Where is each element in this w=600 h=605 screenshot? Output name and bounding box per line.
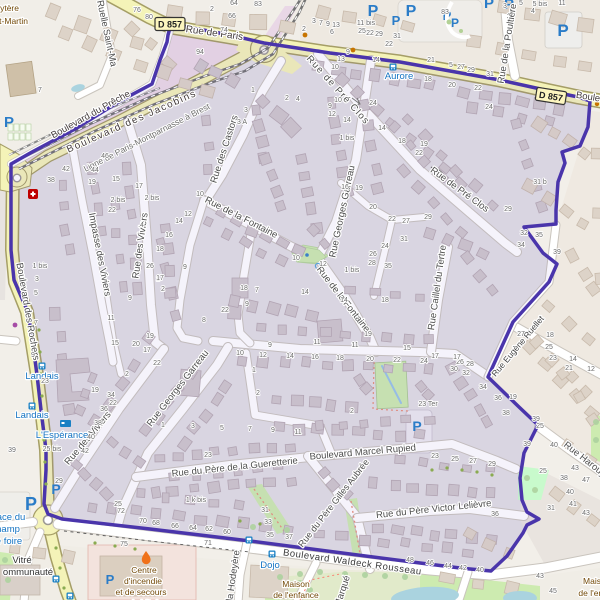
svg-text:3: 3 (35, 276, 39, 283)
svg-text:19: 19 (509, 394, 517, 401)
svg-text:29: 29 (504, 206, 512, 213)
svg-text:13: 13 (337, 56, 345, 63)
svg-text:7: 7 (255, 287, 259, 294)
svg-text:22: 22 (153, 360, 161, 367)
svg-text:7: 7 (38, 87, 42, 94)
svg-text:P: P (392, 13, 401, 28)
svg-text:11: 11 (558, 0, 565, 7)
svg-text:64: 64 (230, 0, 238, 7)
svg-text:24: 24 (369, 100, 377, 107)
svg-text:2: 2 (302, 26, 306, 33)
svg-text:11 bis: 11 bis (357, 20, 376, 27)
svg-text:P: P (412, 418, 421, 434)
svg-text:Mais: Mais (583, 576, 600, 586)
svg-text:32: 32 (520, 230, 528, 237)
svg-text:43: 43 (536, 573, 544, 580)
svg-text:Maison: Maison (282, 579, 310, 589)
svg-text:40: 40 (550, 442, 558, 449)
svg-text:9: 9 (268, 342, 272, 349)
svg-text:10: 10 (334, 97, 342, 104)
svg-text:35: 35 (266, 532, 274, 539)
svg-text:22: 22 (366, 30, 374, 37)
svg-text:ommunauté: ommunauté (3, 567, 53, 578)
svg-text:9: 9 (183, 264, 187, 271)
svg-text:72: 72 (117, 508, 125, 515)
svg-text:38: 38 (47, 177, 55, 184)
svg-text:42: 42 (81, 448, 89, 455)
svg-text:20: 20 (366, 356, 374, 363)
svg-text:12: 12 (587, 366, 595, 373)
svg-text:15: 15 (112, 176, 120, 183)
svg-text:39: 39 (523, 441, 531, 448)
svg-text:31: 31 (393, 33, 401, 40)
svg-text:Vitré: Vitré (12, 555, 31, 566)
svg-text:17: 17 (156, 275, 164, 282)
svg-text:23: 23 (549, 355, 557, 362)
svg-text:8: 8 (202, 317, 206, 324)
svg-text:66: 66 (228, 13, 236, 20)
svg-text:9: 9 (346, 49, 350, 56)
svg-text:94: 94 (196, 49, 204, 56)
svg-text:4: 4 (140, 222, 144, 229)
svg-text:7: 7 (248, 426, 252, 433)
svg-text:Aurore: Aurore (385, 71, 414, 82)
svg-text:12: 12 (328, 111, 336, 118)
svg-text:76: 76 (133, 7, 141, 14)
svg-text:3: 3 (503, 3, 507, 10)
svg-text:18: 18 (381, 297, 389, 304)
svg-text:42: 42 (62, 166, 70, 173)
svg-text:28: 28 (466, 361, 474, 368)
svg-text:1 bis: 1 bis (345, 267, 360, 274)
svg-text:14: 14 (301, 289, 309, 296)
svg-text:2 bis: 2 bis (111, 197, 126, 204)
svg-text:et de secours: et de secours (115, 587, 166, 597)
svg-text:12: 12 (259, 352, 267, 359)
svg-text:19: 19 (420, 141, 428, 148)
svg-text:26: 26 (369, 251, 377, 258)
svg-text:2: 2 (285, 95, 289, 102)
svg-text:33: 33 (264, 519, 272, 526)
svg-text:2: 2 (210, 6, 214, 13)
svg-text:42: 42 (459, 565, 467, 572)
svg-text:3: 3 (312, 18, 316, 25)
svg-text:14: 14 (569, 356, 577, 363)
svg-text:25: 25 (114, 501, 122, 508)
svg-text:31 b: 31 b (533, 179, 547, 186)
svg-text:38: 38 (94, 420, 102, 427)
svg-text:11: 11 (107, 315, 114, 322)
svg-text:14: 14 (175, 218, 183, 225)
svg-text:29: 29 (424, 214, 432, 221)
svg-text:2: 2 (161, 286, 165, 293)
svg-text:31: 31 (400, 236, 408, 243)
svg-text:6: 6 (330, 29, 334, 36)
svg-text:35: 35 (384, 263, 392, 270)
svg-text:22: 22 (108, 207, 116, 214)
svg-text:10: 10 (236, 350, 244, 357)
svg-text:5: 5 (34, 290, 38, 297)
svg-text:23: 23 (431, 453, 439, 460)
svg-text:21: 21 (565, 365, 573, 372)
svg-text:3 A: 3 A (237, 119, 247, 126)
svg-text:68: 68 (152, 520, 160, 527)
svg-text:2: 2 (125, 371, 129, 378)
svg-text:19: 19 (88, 179, 96, 186)
svg-text:11: 11 (351, 342, 358, 349)
svg-text:34: 34 (107, 392, 115, 399)
svg-text:5 bis: 5 bis (533, 1, 548, 8)
svg-text:23: 23 (204, 452, 212, 459)
svg-text:24: 24 (420, 358, 428, 365)
svg-text:28: 28 (368, 260, 376, 267)
svg-text:20: 20 (369, 204, 377, 211)
svg-text:15: 15 (403, 345, 411, 352)
svg-text:32: 32 (462, 370, 470, 377)
svg-text:22: 22 (415, 150, 423, 157)
svg-text:47: 47 (582, 477, 590, 484)
svg-text:Centre: Centre (131, 565, 157, 575)
svg-text:11: 11 (313, 339, 320, 346)
svg-text:17: 17 (135, 183, 143, 190)
svg-text:e foire: e foire (0, 536, 22, 547)
svg-text:16: 16 (165, 232, 173, 239)
svg-text:31: 31 (547, 505, 555, 512)
svg-text:31: 31 (261, 507, 269, 514)
svg-text:5: 5 (449, 62, 453, 69)
svg-text:45: 45 (549, 588, 557, 595)
svg-text:71: 71 (204, 540, 212, 547)
svg-text:D 857: D 857 (158, 20, 182, 30)
svg-text:Landais: Landais (15, 410, 49, 421)
svg-text:10: 10 (331, 64, 339, 71)
svg-text:31: 31 (486, 71, 494, 78)
svg-text:22: 22 (474, 85, 482, 92)
svg-text:40: 40 (476, 567, 484, 574)
svg-text:Dojo: Dojo (260, 560, 280, 571)
svg-text:9: 9 (128, 295, 132, 302)
svg-text:27: 27 (402, 218, 410, 225)
svg-text:1: 1 (252, 367, 256, 374)
svg-text:9: 9 (245, 301, 249, 308)
svg-text:29: 29 (55, 478, 63, 485)
svg-text:9: 9 (326, 21, 330, 28)
svg-text:18: 18 (240, 285, 248, 292)
svg-text:23 Ter: 23 Ter (418, 401, 438, 408)
svg-text:27: 27 (457, 64, 465, 71)
svg-text:38: 38 (560, 475, 568, 482)
svg-text:ace du: ace du (0, 512, 25, 523)
svg-text:P: P (557, 21, 568, 40)
svg-text:14: 14 (286, 353, 294, 360)
svg-text:18: 18 (546, 332, 554, 339)
svg-text:10: 10 (292, 255, 300, 262)
svg-text:25: 25 (358, 28, 366, 35)
svg-text:38: 38 (502, 410, 510, 417)
svg-text:17: 17 (143, 347, 151, 354)
svg-text:20: 20 (448, 82, 456, 89)
svg-text:34: 34 (517, 242, 525, 249)
svg-text:48: 48 (406, 557, 414, 564)
svg-text:62: 62 (205, 526, 213, 533)
svg-text:17: 17 (431, 353, 439, 360)
svg-text:7: 7 (319, 20, 323, 27)
svg-text:9: 9 (271, 427, 275, 434)
svg-text:P: P (25, 494, 37, 514)
svg-text:de l'enfance: de l'enfance (273, 590, 319, 600)
svg-text:1 bis: 1 bis (33, 263, 48, 270)
svg-text:35: 35 (535, 232, 543, 239)
svg-text:39: 39 (553, 249, 561, 256)
svg-text:1: 1 (161, 422, 165, 429)
svg-text:21: 21 (427, 57, 435, 64)
svg-text:1 bis: 1 bis (340, 135, 355, 142)
svg-text:29: 29 (467, 67, 475, 74)
svg-text:83: 83 (254, 1, 262, 8)
svg-text:1: 1 (251, 87, 255, 94)
svg-text:P: P (451, 16, 459, 30)
svg-text:46: 46 (101, 153, 109, 160)
svg-text:74: 74 (220, 27, 228, 34)
svg-text:5: 5 (519, 0, 523, 7)
svg-text:2: 2 (350, 408, 354, 415)
svg-text:14: 14 (372, 57, 380, 64)
svg-text:25: 25 (545, 344, 553, 351)
svg-text:36: 36 (494, 395, 502, 402)
svg-text:14: 14 (343, 117, 351, 124)
svg-text:25 bis: 25 bis (43, 446, 62, 453)
svg-text:22: 22 (109, 400, 117, 407)
svg-text:14: 14 (378, 125, 386, 132)
svg-text:24: 24 (485, 104, 493, 111)
svg-text:29: 29 (488, 461, 496, 468)
svg-text:22: 22 (393, 357, 401, 364)
svg-text:26: 26 (146, 263, 154, 270)
svg-text:19: 19 (364, 331, 372, 338)
svg-text:83: 83 (441, 9, 449, 16)
svg-text:Saint-Martin: Saint-Martin (0, 16, 28, 26)
svg-text:18: 18 (336, 355, 344, 362)
svg-text:16: 16 (311, 354, 319, 361)
svg-text:7: 7 (34, 320, 38, 327)
svg-text:3: 3 (244, 107, 248, 114)
svg-text:hamp: hamp (0, 524, 20, 535)
svg-text:41: 41 (569, 501, 577, 508)
svg-text:43: 43 (582, 510, 590, 517)
svg-text:23: 23 (41, 378, 49, 385)
svg-text:P: P (484, 0, 494, 12)
svg-text:de l'enf: de l'enf (578, 588, 600, 598)
svg-text:44: 44 (91, 167, 99, 174)
svg-text:19: 19 (91, 387, 99, 394)
svg-text:27: 27 (517, 331, 525, 338)
svg-text:12: 12 (184, 211, 192, 218)
svg-text:P: P (406, 3, 417, 20)
svg-text:17: 17 (453, 354, 461, 361)
svg-text:25: 25 (539, 468, 547, 475)
svg-text:40: 40 (566, 489, 574, 496)
svg-text:60: 60 (223, 529, 231, 536)
svg-text:18: 18 (156, 246, 164, 253)
svg-text:14: 14 (340, 297, 348, 304)
svg-text:22: 22 (385, 41, 393, 48)
svg-text:80: 80 (145, 14, 153, 21)
svg-text:2: 2 (256, 390, 260, 397)
svg-text:4: 4 (531, 8, 535, 15)
svg-text:9: 9 (31, 352, 35, 359)
svg-text:70: 70 (139, 518, 147, 525)
svg-text:75: 75 (120, 541, 128, 548)
svg-text:16: 16 (341, 184, 349, 191)
svg-text:15: 15 (111, 340, 119, 347)
svg-text:1 k bis: 1 k bis (186, 497, 207, 504)
svg-text:29: 29 (375, 31, 383, 38)
svg-text:39: 39 (8, 447, 16, 454)
svg-text:22: 22 (221, 307, 229, 314)
svg-text:18: 18 (398, 138, 406, 145)
svg-text:P: P (368, 3, 379, 20)
svg-text:25: 25 (536, 423, 544, 430)
svg-text:43: 43 (571, 465, 579, 472)
svg-text:13: 13 (332, 22, 340, 29)
svg-text:19: 19 (146, 333, 154, 340)
svg-text:19: 19 (355, 185, 363, 192)
svg-text:37: 37 (285, 534, 293, 541)
svg-text:27: 27 (469, 458, 477, 465)
svg-text:25: 25 (451, 456, 459, 463)
svg-text:9: 9 (328, 103, 332, 110)
svg-text:3: 3 (191, 423, 195, 430)
svg-text:36: 36 (491, 511, 499, 518)
svg-text:30: 30 (450, 366, 458, 373)
svg-text:39: 39 (532, 416, 540, 423)
svg-text:d'incendie: d'incendie (124, 576, 162, 586)
svg-text:11: 11 (294, 429, 301, 436)
svg-text:20: 20 (132, 341, 140, 348)
svg-text:64: 64 (189, 525, 197, 532)
svg-text:34: 34 (479, 384, 487, 391)
svg-text:4: 4 (296, 96, 300, 103)
svg-text:36: 36 (100, 406, 108, 413)
svg-text:12: 12 (319, 261, 327, 268)
svg-text:44: 44 (444, 563, 452, 570)
svg-text:2 bis: 2 bis (145, 195, 160, 202)
svg-text:Presbytère: Presbytère (0, 3, 19, 13)
svg-text:18: 18 (424, 76, 432, 83)
svg-text:10: 10 (196, 191, 204, 198)
svg-text:5: 5 (220, 425, 224, 432)
svg-text:46: 46 (426, 560, 434, 567)
svg-text:40: 40 (87, 434, 95, 441)
svg-text:P: P (106, 572, 115, 587)
svg-text:66: 66 (171, 523, 179, 530)
svg-text:22: 22 (388, 216, 396, 223)
svg-text:24: 24 (381, 243, 389, 250)
svg-text:L'Espérance: L'Espérance (36, 430, 89, 441)
